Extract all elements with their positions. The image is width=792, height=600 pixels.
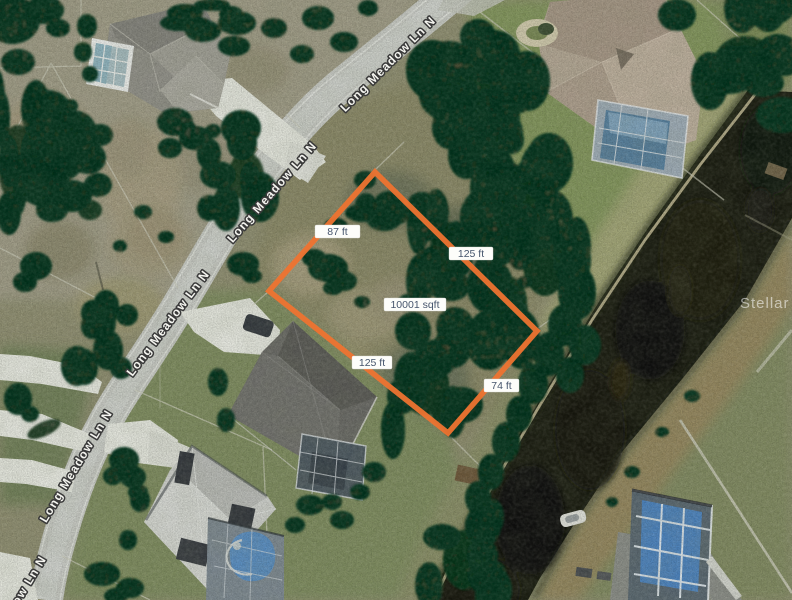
svg-text:Stellar M: Stellar M	[740, 295, 792, 312]
svg-text:87 ft: 87 ft	[327, 226, 348, 238]
svg-text:125 ft: 125 ft	[458, 248, 484, 260]
svg-text:125 ft: 125 ft	[359, 357, 385, 369]
svg-text:10001 sqft: 10001 sqft	[390, 299, 439, 311]
svg-text:74 ft: 74 ft	[491, 380, 512, 392]
